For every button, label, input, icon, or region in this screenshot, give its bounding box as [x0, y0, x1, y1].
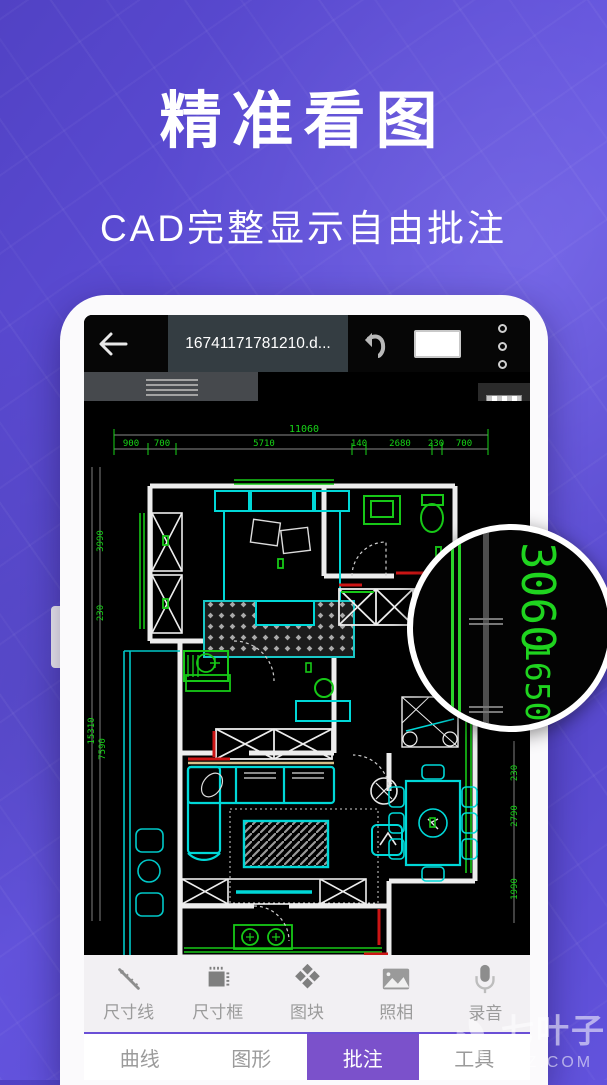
page-title: 精准看图 [0, 70, 607, 160]
dimension-line-icon [114, 964, 144, 994]
camera-icon [380, 964, 412, 994]
balcony [124, 651, 180, 955]
svg-text:2680: 2680 [389, 439, 411, 449]
dimension-line-band [483, 530, 489, 726]
leaf-logo-icon [443, 1012, 495, 1064]
svg-text:700: 700 [154, 439, 170, 449]
block-tool[interactable]: 图块 [262, 955, 351, 1032]
app-top-bar: 16741171781210.d... [84, 315, 530, 372]
magnifier-loupe: 3060 1650 3190 [407, 524, 607, 732]
back-icon[interactable] [96, 329, 130, 359]
tab-shapes[interactable]: 图形 [196, 1034, 308, 1080]
dimension-tick [469, 711, 503, 713]
svg-text:140: 140 [351, 439, 367, 449]
dimension-line-tool[interactable]: 尺寸线 [84, 955, 173, 1032]
living-room-furniture [182, 763, 402, 904]
svg-text:230: 230 [96, 605, 106, 621]
svg-text:1990: 1990 [510, 878, 520, 900]
svg-text:2790: 2790 [510, 805, 520, 827]
svg-text:230: 230 [510, 765, 520, 781]
svg-text:5710: 5710 [253, 439, 275, 449]
hero-section: 精准看图 CAD完整显示自由批注 [0, 70, 607, 252]
cad-window-line [458, 530, 461, 726]
dimension-box-icon [203, 964, 233, 994]
dimension-box-tool[interactable]: 尺寸框 [173, 955, 262, 1032]
svg-text:900: 900 [123, 439, 139, 449]
microphone-icon [470, 963, 500, 995]
undo-icon[interactable] [358, 327, 390, 359]
cad-window-line [451, 530, 454, 726]
study-furniture [184, 651, 350, 759]
tool-label: 图块 [290, 998, 324, 1023]
dining-furniture [389, 697, 477, 881]
tool-label: 尺寸线 [103, 998, 154, 1023]
dimension-tick [469, 618, 503, 620]
svg-text:11060: 11060 [289, 424, 319, 435]
watermark-domain: 7YZ.COM [501, 1054, 606, 1072]
svg-text:15310: 15310 [87, 717, 97, 744]
overflow-menu-icon[interactable] [498, 324, 507, 369]
svg-text:3990: 3990 [96, 530, 106, 552]
watermark-name: 七叶子 [501, 1004, 606, 1052]
svg-text:700: 700 [456, 439, 472, 449]
drag-handle-icon [146, 379, 198, 399]
site-watermark: 七叶子 7YZ.COM [443, 1004, 606, 1072]
fit-view-button[interactable] [414, 330, 461, 358]
kitchen-fixtures [234, 925, 292, 949]
camera-tool[interactable]: 照相 [352, 955, 441, 1032]
svg-text:7590: 7590 [98, 738, 108, 760]
magnified-dimension-value: 1650 [518, 642, 557, 721]
tool-label: 照相 [379, 998, 413, 1023]
tab-annotate[interactable]: 批注 [307, 1034, 419, 1080]
tool-label: 尺寸框 [192, 998, 243, 1023]
dimension-tick [469, 623, 503, 625]
open-file-name[interactable]: 16741171781210.d... [168, 315, 348, 372]
layer-drawer-bar[interactable] [84, 372, 258, 401]
svg-text:230: 230 [428, 439, 444, 449]
page-subtitle: CAD完整显示自由批注 [0, 198, 607, 252]
block-icon [292, 964, 322, 994]
dimension-tick [469, 706, 503, 708]
tab-curve[interactable]: 曲线 [84, 1034, 196, 1080]
magnified-dimension-value: 3060 [511, 542, 565, 653]
